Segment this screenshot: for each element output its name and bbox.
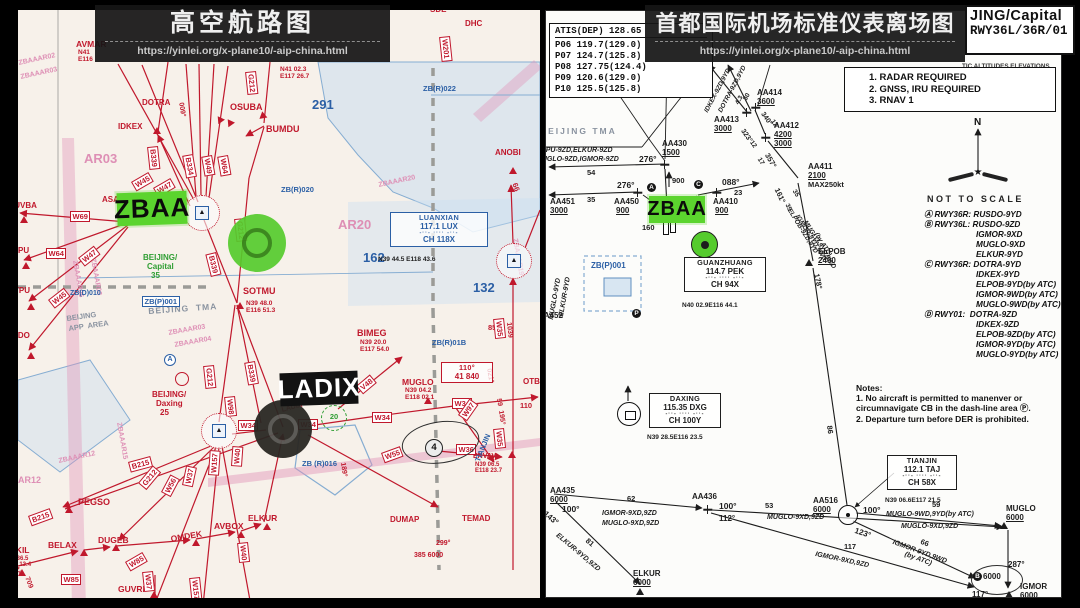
star-icon: ★ (974, 167, 983, 178)
legend-row: Ⓒ RWY36R: DOTRA-9YD (924, 260, 1061, 270)
legend-row: MUGLO-9XD (924, 240, 1061, 250)
chart-id-runways: RWY36L/36R/01 (970, 24, 1070, 38)
map-label: MUGLO-9XD,9ZD (901, 523, 958, 530)
atis-row: P09 120.6(129.0) (555, 73, 707, 84)
fix-icon (633, 188, 642, 197)
waypoint-triangle-icon (237, 531, 245, 538)
map-label: N39 28.5E116 23.5 (647, 435, 703, 442)
circled-letter-icon: A (164, 354, 176, 366)
map-label: ZB(R)022 (423, 85, 456, 93)
map-label: GUVRI (118, 585, 145, 594)
atis-row: P10 125.5(125.8) (555, 84, 707, 95)
waypoint-triangle-icon (153, 127, 161, 134)
waypoint-triangle-icon (80, 549, 88, 556)
map-label: MUGLO (402, 378, 434, 387)
map-label: 100° (719, 502, 737, 511)
map-label: 53 (765, 502, 773, 510)
map-label: 900 (715, 207, 728, 215)
waypoint-triangle-icon (22, 262, 30, 269)
map-label: BOTPU (18, 287, 30, 295)
waypoint-triangle-icon (150, 591, 158, 598)
map-label: 1500 (662, 149, 680, 157)
map-label: 110 (520, 402, 532, 410)
airport-icon (617, 402, 641, 426)
map-label: 3000 (774, 140, 792, 148)
navaid-box: 110°41 840 (441, 362, 493, 383)
map-label: ZB(P)001 (591, 262, 626, 270)
waypoint-triangle-icon (805, 259, 813, 266)
airway-badge: W64 (46, 248, 66, 259)
map-label: 3000 (714, 125, 732, 133)
map-label: ZB (R)016 (302, 460, 337, 468)
map-label: 900 (616, 207, 629, 215)
fix-icon (761, 133, 770, 142)
map-label: SOTMU (243, 287, 276, 297)
map-label: 100° (863, 506, 881, 515)
map-label: 62 (627, 495, 635, 503)
right-chart-title-banner: 首都国际机场标准仪表离场图 https://yinlei.org/x-plane… (645, 5, 965, 62)
requirement-row: 1. RADAR REQUIRED (869, 72, 1051, 84)
map-label: 276° (639, 155, 657, 164)
not-to-scale-label: NOT TO SCALE (927, 194, 1024, 204)
map-label: AA452 (545, 312, 563, 320)
airway-badge: W35 (493, 318, 506, 339)
map-label: N40 02.9E116 44.1 (682, 303, 738, 310)
circle-icon (175, 372, 189, 386)
airway-badge: W40 (231, 446, 243, 467)
waypoint-triangle-icon (192, 539, 200, 546)
map-label: AR12 (18, 476, 41, 486)
map-label: 6000 (1006, 514, 1024, 522)
circled-number-icon: 4 (425, 439, 443, 457)
left-chart-title: 高空航路图 (95, 9, 390, 39)
map-label: 132 (473, 281, 495, 295)
map-label: 178° (812, 273, 823, 290)
map-label: 900 (672, 177, 685, 185)
left-chart-url: https://yinlei.org/x-plane10/-aip-china.… (105, 41, 380, 57)
map-label: 3000 (550, 207, 568, 215)
airway-badge: W37 (142, 571, 155, 592)
map-label: 291 (312, 98, 334, 112)
map-label: ANOBI (495, 149, 521, 157)
legend-row: IGMOR-9WD(by ATC) (924, 290, 1061, 300)
map-label: 117° (972, 591, 988, 598)
airway-badge: W40 (237, 542, 250, 563)
zbaa-callout: ZBAA (116, 191, 187, 226)
note-row: 1. No aircraft is permitted to manenver … (856, 393, 1031, 403)
waypoint-triangle-icon (508, 451, 516, 458)
waypoint-triangle-icon (424, 397, 432, 404)
map-label: IDKEX (118, 123, 142, 131)
map-label: 35 (587, 196, 595, 204)
map-label: IGMOR-9XD,9ZD (602, 510, 657, 517)
map-label: 86 (825, 425, 834, 434)
legend-row: ELPOB-9YD(by ATC) (924, 280, 1061, 290)
waypoint-triangle-icon (636, 588, 644, 595)
navaid-box: LUANXIAN117.1 LUX-··- ···· -··-CH 118X (390, 212, 488, 247)
navaid-box: GUANZHUANG114.7 PEK-··- ···· -··-CH 94X (684, 257, 766, 292)
map-label: OSUBA (230, 103, 263, 113)
map-label: AR20 (338, 218, 371, 232)
map-label: 54 (587, 169, 595, 177)
airway-badge: W85 (61, 574, 81, 585)
airway-badge: W69 (70, 211, 90, 222)
map-label: 160 (642, 224, 655, 232)
area-badge: ZB(P)001 (142, 296, 180, 307)
map-label: 59 (495, 398, 503, 407)
right-chart-url: https://yinlei.org/x-plane10/-aip-china.… (655, 41, 955, 57)
waypoint-triangle-icon (509, 167, 517, 174)
map-label: 6000 (633, 579, 651, 587)
circled-letter-icon: P (632, 309, 641, 318)
map-label: TEMAD (462, 515, 490, 523)
map-label: N39 44.5 E118 43.6 (378, 257, 435, 264)
legend-row: ELPOB-9ZD(by ATC) (924, 330, 1061, 340)
notes-block: Notes:1. No aircraft is permitted to man… (856, 383, 1031, 424)
map-label: KEKIL (18, 546, 30, 555)
map-label: MUGLO-9ZD,IGMOR-9ZD (545, 156, 619, 163)
map-label: DUMAP (390, 516, 419, 524)
atis-row: P08 127.75(124.4) (555, 62, 707, 73)
zbaa-callout-right: ZBAA (649, 196, 705, 223)
enroute-chart-panel: ZBAAAR02ZBAAAR03AR03AR20ZBAAAR20ZBAAAR19… (18, 10, 540, 598)
waypoint-triangle-icon (112, 544, 120, 551)
map-label: PEGSO (78, 498, 110, 508)
circled-letter-icon: A (647, 183, 656, 192)
map-label: ELKUR (248, 514, 277, 523)
airway-badge: W34 (372, 412, 392, 423)
waypoint-triangle-icon (1005, 591, 1013, 598)
map-label: 100° (562, 505, 580, 514)
legend-row: IGMOR-9YD(by ATC) (924, 340, 1061, 350)
map-label: 59 (932, 501, 940, 509)
note-row: circumnavigate CB in the dash-line area … (856, 403, 1031, 413)
note-row: 2. Departure turn before DER is prohibit… (856, 414, 1031, 424)
airway-badge: B339 (147, 146, 160, 170)
legend-row: MUGLO-9YD(by ATC) (924, 350, 1061, 360)
map-label: AA436 (692, 493, 717, 501)
map-label: BEIJING TMA (545, 127, 617, 136)
circled-letter-icon: B (973, 572, 982, 581)
vor-compass-rose-icon: ▲ (496, 243, 532, 279)
map-label: OTB (523, 378, 540, 386)
fix-icon (751, 103, 760, 112)
map-label: AR03 (84, 152, 117, 166)
wings-emblem-icon: ★ (948, 169, 1008, 183)
map-label: ZB(R)020 (281, 186, 314, 194)
map-label: RUSDO (18, 332, 30, 340)
green-cursor-marker-right (691, 231, 718, 258)
waypoint-triangle-icon (27, 303, 35, 310)
airway-badge: G212 (245, 71, 258, 95)
legend-row: Ⓐ RWY36R: RUSDO-9YD (924, 210, 1061, 220)
departure-legend: Ⓐ RWY36R: RUSDO-9YDⒷ RWY36L: RUSDO-9ZDIG… (924, 210, 1061, 360)
map-label: MUGLO-9XD,9ZD (767, 514, 824, 521)
chart-id-box: JING/Capital RWY36L/36R/01 (965, 5, 1075, 55)
map-label: BIMEG (357, 329, 387, 339)
waypoint-triangle-icon (263, 523, 271, 530)
map-label: ZB(D)010 (70, 290, 101, 297)
map-label: 23 (734, 189, 742, 197)
legend-row: IDKEX-9YD (924, 270, 1061, 280)
map-label: E116 51.3 (246, 308, 275, 315)
requirement-row: 3. RNAV 1 (869, 95, 1051, 107)
chart-id-name: JING/Capital (970, 8, 1070, 24)
waypoint-triangle-icon (18, 569, 26, 576)
map-label: E118 23.7 (475, 468, 502, 474)
right-chart-title: 首都国际机场标准仪表离场图 (645, 9, 965, 39)
map-label: 276° (617, 181, 635, 190)
fix-icon (712, 188, 721, 197)
enroute-chart-canvas: ZBAAAR02ZBAAAR03AR03AR20ZBAAAR20ZBAAAR19… (18, 10, 540, 598)
map-label: ELAPU (18, 247, 29, 255)
map-label: GUVBA (18, 202, 37, 210)
map-label: SDE (430, 10, 446, 14)
vor-icon (838, 505, 858, 525)
navaid-box: TIANJIN112.1 TAJ-··- ···· -··-CH 58X (887, 455, 957, 490)
waypoint-triangle-icon (20, 216, 28, 223)
map-label: E117 26.7 (280, 74, 309, 81)
legend-row: ELKUR-9YD (924, 250, 1061, 260)
map-label: 112° (719, 515, 735, 523)
legend-row: IGMOR-9XD (924, 230, 1061, 240)
green-cursor-marker (228, 214, 286, 272)
waypoint-triangle-icon (236, 302, 244, 309)
sid-chart-panel: BEIJING TMA4500AA4301500900OTPU-9ZD,ELKU… (545, 10, 1062, 598)
requirement-row: 2. GNSS, IRU REQUIRED (869, 84, 1051, 96)
airway-badge: G212 (203, 365, 216, 389)
map-label: BUMDU (266, 125, 300, 135)
requirements-box: 1. RADAR REQUIRED2. GNSS, IRU REQUIRED3.… (844, 67, 1056, 112)
north-label: N (974, 117, 981, 128)
map-label: 385 6000 (414, 552, 443, 559)
vor-compass-rose-icon: ▲ (201, 413, 237, 449)
navaid-box: DAXING115.35 DXG-··- ···· -··-CH 100Y (649, 393, 721, 428)
airway-badge: W157 (208, 450, 221, 475)
map-label: 299° (436, 540, 450, 547)
legend-row: Ⓓ RWY01: DOTRA-9ZD (924, 310, 1061, 320)
map-label: 25 (160, 409, 169, 417)
waypoint-triangle-icon (27, 352, 35, 359)
legend-row: Ⓑ RWY36L: RUSDO-9ZD (924, 220, 1061, 230)
map-label: DHC (465, 20, 482, 28)
circled-letter-icon: C (694, 180, 703, 189)
left-chart-title-banner: 高空航路图 https://yinlei.org/x-plane10/-aip-… (95, 5, 390, 62)
map-label: MAX250kt (808, 181, 844, 189)
map-label: 35 (151, 272, 160, 280)
map-label: 6000 (1020, 592, 1038, 598)
legend-row: IDKEX-9ZD (924, 320, 1061, 330)
airway-badge: W35 (493, 428, 506, 449)
map-label: 117 (844, 543, 856, 551)
legend-row: MUGLO-9WD(by ATC) (924, 300, 1061, 310)
waypoint-triangle-icon (1000, 522, 1008, 529)
map-label: E116 (78, 57, 93, 64)
ladix-callout: LADIX (279, 371, 358, 407)
map-label: OTPU-9ZD,ELKUR-9ZD (545, 147, 613, 154)
map-label: MUGLO-9WD,9YD(by ATC) (886, 511, 974, 518)
waypoint-triangle-icon (65, 506, 73, 513)
note-row: Notes: (856, 383, 1031, 393)
map-label: ZB(R)01B (432, 339, 466, 347)
vrp-circle-icon: 20 (321, 405, 347, 431)
map-label: E117 54.0 (360, 347, 389, 354)
fix-icon (660, 160, 669, 169)
map-label: MUGLO-9XD,9ZD (602, 520, 659, 527)
black-cursor-marker (254, 400, 312, 458)
fix-icon (742, 108, 751, 117)
map-label: DOTRA (142, 99, 170, 107)
fix-icon (703, 505, 712, 514)
map-label: AVBOX (214, 522, 244, 531)
slide-stage: ZBAAAR02ZBAAAR03AR03AR20ZBAAAR20ZBAAAR19… (0, 0, 1080, 608)
map-label: 088° (722, 178, 740, 187)
map-label: 6000 (983, 573, 1001, 581)
map-label: BELAX (48, 541, 77, 550)
